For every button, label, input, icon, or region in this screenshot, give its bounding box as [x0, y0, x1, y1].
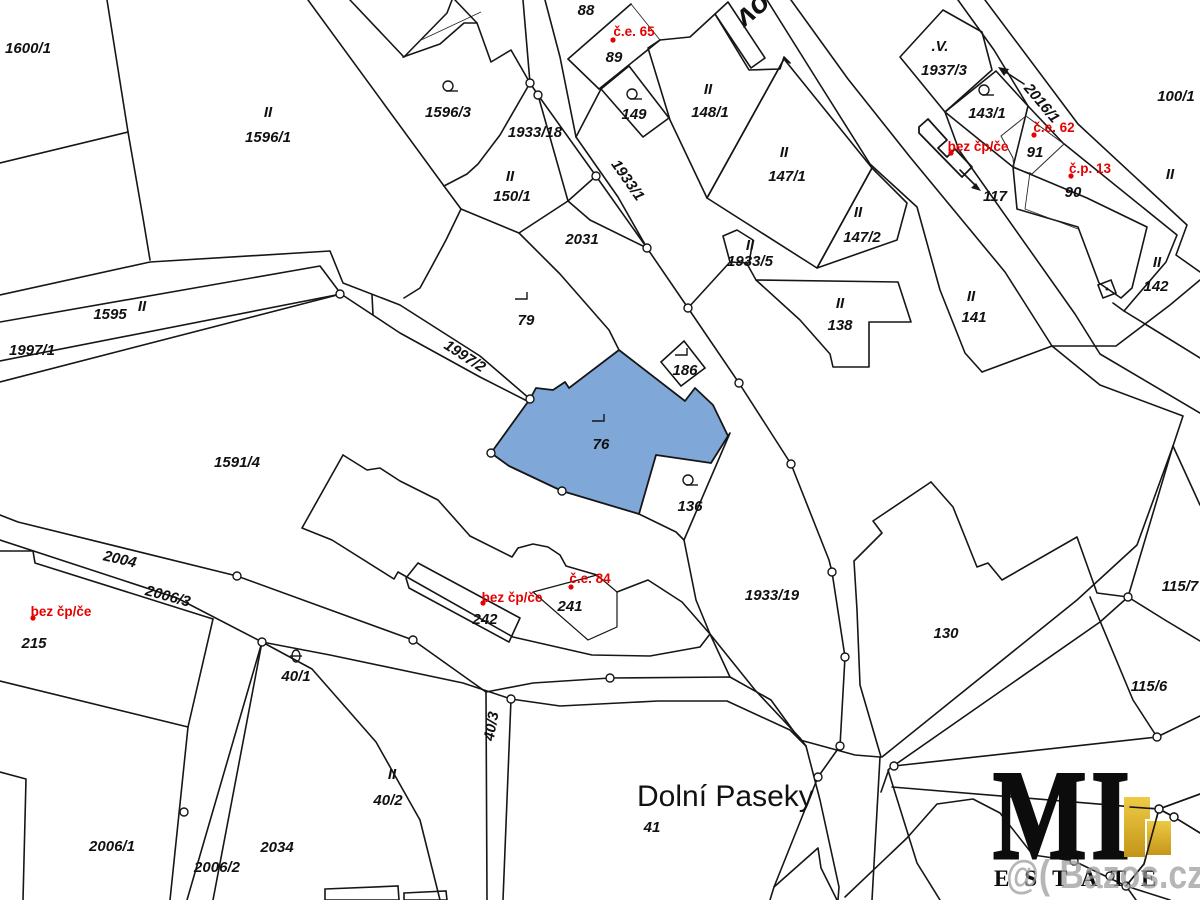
svg-text:Dolní Paseky: Dolní Paseky: [637, 780, 814, 813]
svg-text:II: II: [704, 81, 713, 98]
svg-text:79: 79: [518, 312, 535, 329]
svg-text:242: 242: [471, 611, 498, 628]
svg-text:89: 89: [606, 49, 623, 66]
svg-text:1595: 1595: [93, 306, 127, 323]
svg-text:40/1: 40/1: [280, 668, 310, 685]
svg-text:130: 130: [933, 625, 959, 642]
svg-text:č.e. 62: č.e. 62: [1033, 120, 1074, 135]
svg-text:138: 138: [827, 317, 853, 334]
svg-text:č.p. 13: č.p. 13: [1069, 161, 1112, 176]
svg-text:1600/1: 1600/1: [5, 40, 51, 57]
svg-text:II: II: [264, 104, 273, 121]
svg-text:II: II: [746, 237, 755, 254]
svg-text:bez čp/če: bez čp/če: [31, 604, 92, 619]
svg-text:1596/3: 1596/3: [425, 104, 472, 121]
svg-text:II: II: [854, 204, 863, 221]
svg-text:215: 215: [20, 635, 47, 652]
svg-text:II: II: [138, 298, 147, 315]
svg-text:147/2: 147/2: [843, 229, 881, 246]
svg-text:1937/3: 1937/3: [921, 62, 968, 79]
svg-text:II: II: [1166, 166, 1175, 183]
svg-text:II: II: [780, 144, 789, 161]
svg-text:2034: 2034: [259, 839, 294, 856]
svg-text:1933/18: 1933/18: [508, 124, 563, 141]
svg-text:bez čp/če: bez čp/če: [948, 139, 1009, 154]
svg-text:II: II: [388, 766, 397, 783]
svg-text:40/2: 40/2: [372, 792, 403, 809]
svg-text:148/1: 148/1: [691, 104, 729, 121]
svg-text:2006/2: 2006/2: [193, 859, 241, 876]
svg-text:186: 186: [672, 362, 698, 379]
svg-text:II: II: [1153, 254, 1162, 271]
svg-text:141: 141: [961, 309, 986, 326]
svg-text:241: 241: [556, 598, 582, 615]
svg-text:1596/1: 1596/1: [245, 129, 291, 146]
svg-text:115/7: 115/7: [1162, 578, 1199, 595]
svg-text:1997/1: 1997/1: [9, 342, 55, 359]
svg-text:č.e. 65: č.e. 65: [613, 24, 655, 39]
svg-text:@( Bazos.cz: @( Bazos.cz: [1006, 853, 1200, 897]
svg-text:II: II: [506, 168, 515, 185]
svg-text:1591/4: 1591/4: [214, 454, 261, 471]
svg-text:bez čp/če: bez čp/če: [482, 590, 543, 605]
svg-text:100/1: 100/1: [1157, 88, 1195, 105]
svg-text:2031: 2031: [564, 231, 598, 248]
svg-text:II: II: [836, 295, 845, 312]
svg-text:142: 142: [1143, 278, 1169, 295]
svg-text:41: 41: [643, 819, 661, 836]
svg-text:90: 90: [1065, 184, 1082, 201]
svg-text:II: II: [967, 288, 976, 305]
svg-text:136: 136: [677, 498, 703, 515]
svg-text:1933/5: 1933/5: [727, 253, 774, 270]
svg-text:117: 117: [983, 188, 1008, 205]
svg-text:76: 76: [593, 436, 610, 453]
svg-text:.V.: .V.: [932, 38, 949, 55]
svg-text:143/1: 143/1: [968, 105, 1006, 122]
svg-text:149: 149: [621, 106, 647, 123]
svg-text:147/1: 147/1: [768, 168, 806, 185]
svg-text:č.e. 84: č.e. 84: [569, 571, 611, 586]
svg-text:88: 88: [578, 2, 595, 19]
svg-text:1933/19: 1933/19: [745, 587, 800, 604]
svg-text:91: 91: [1027, 144, 1044, 161]
svg-text:115/6: 115/6: [1131, 678, 1168, 695]
svg-text:2006/1: 2006/1: [88, 838, 135, 855]
svg-text:150/1: 150/1: [493, 188, 531, 205]
